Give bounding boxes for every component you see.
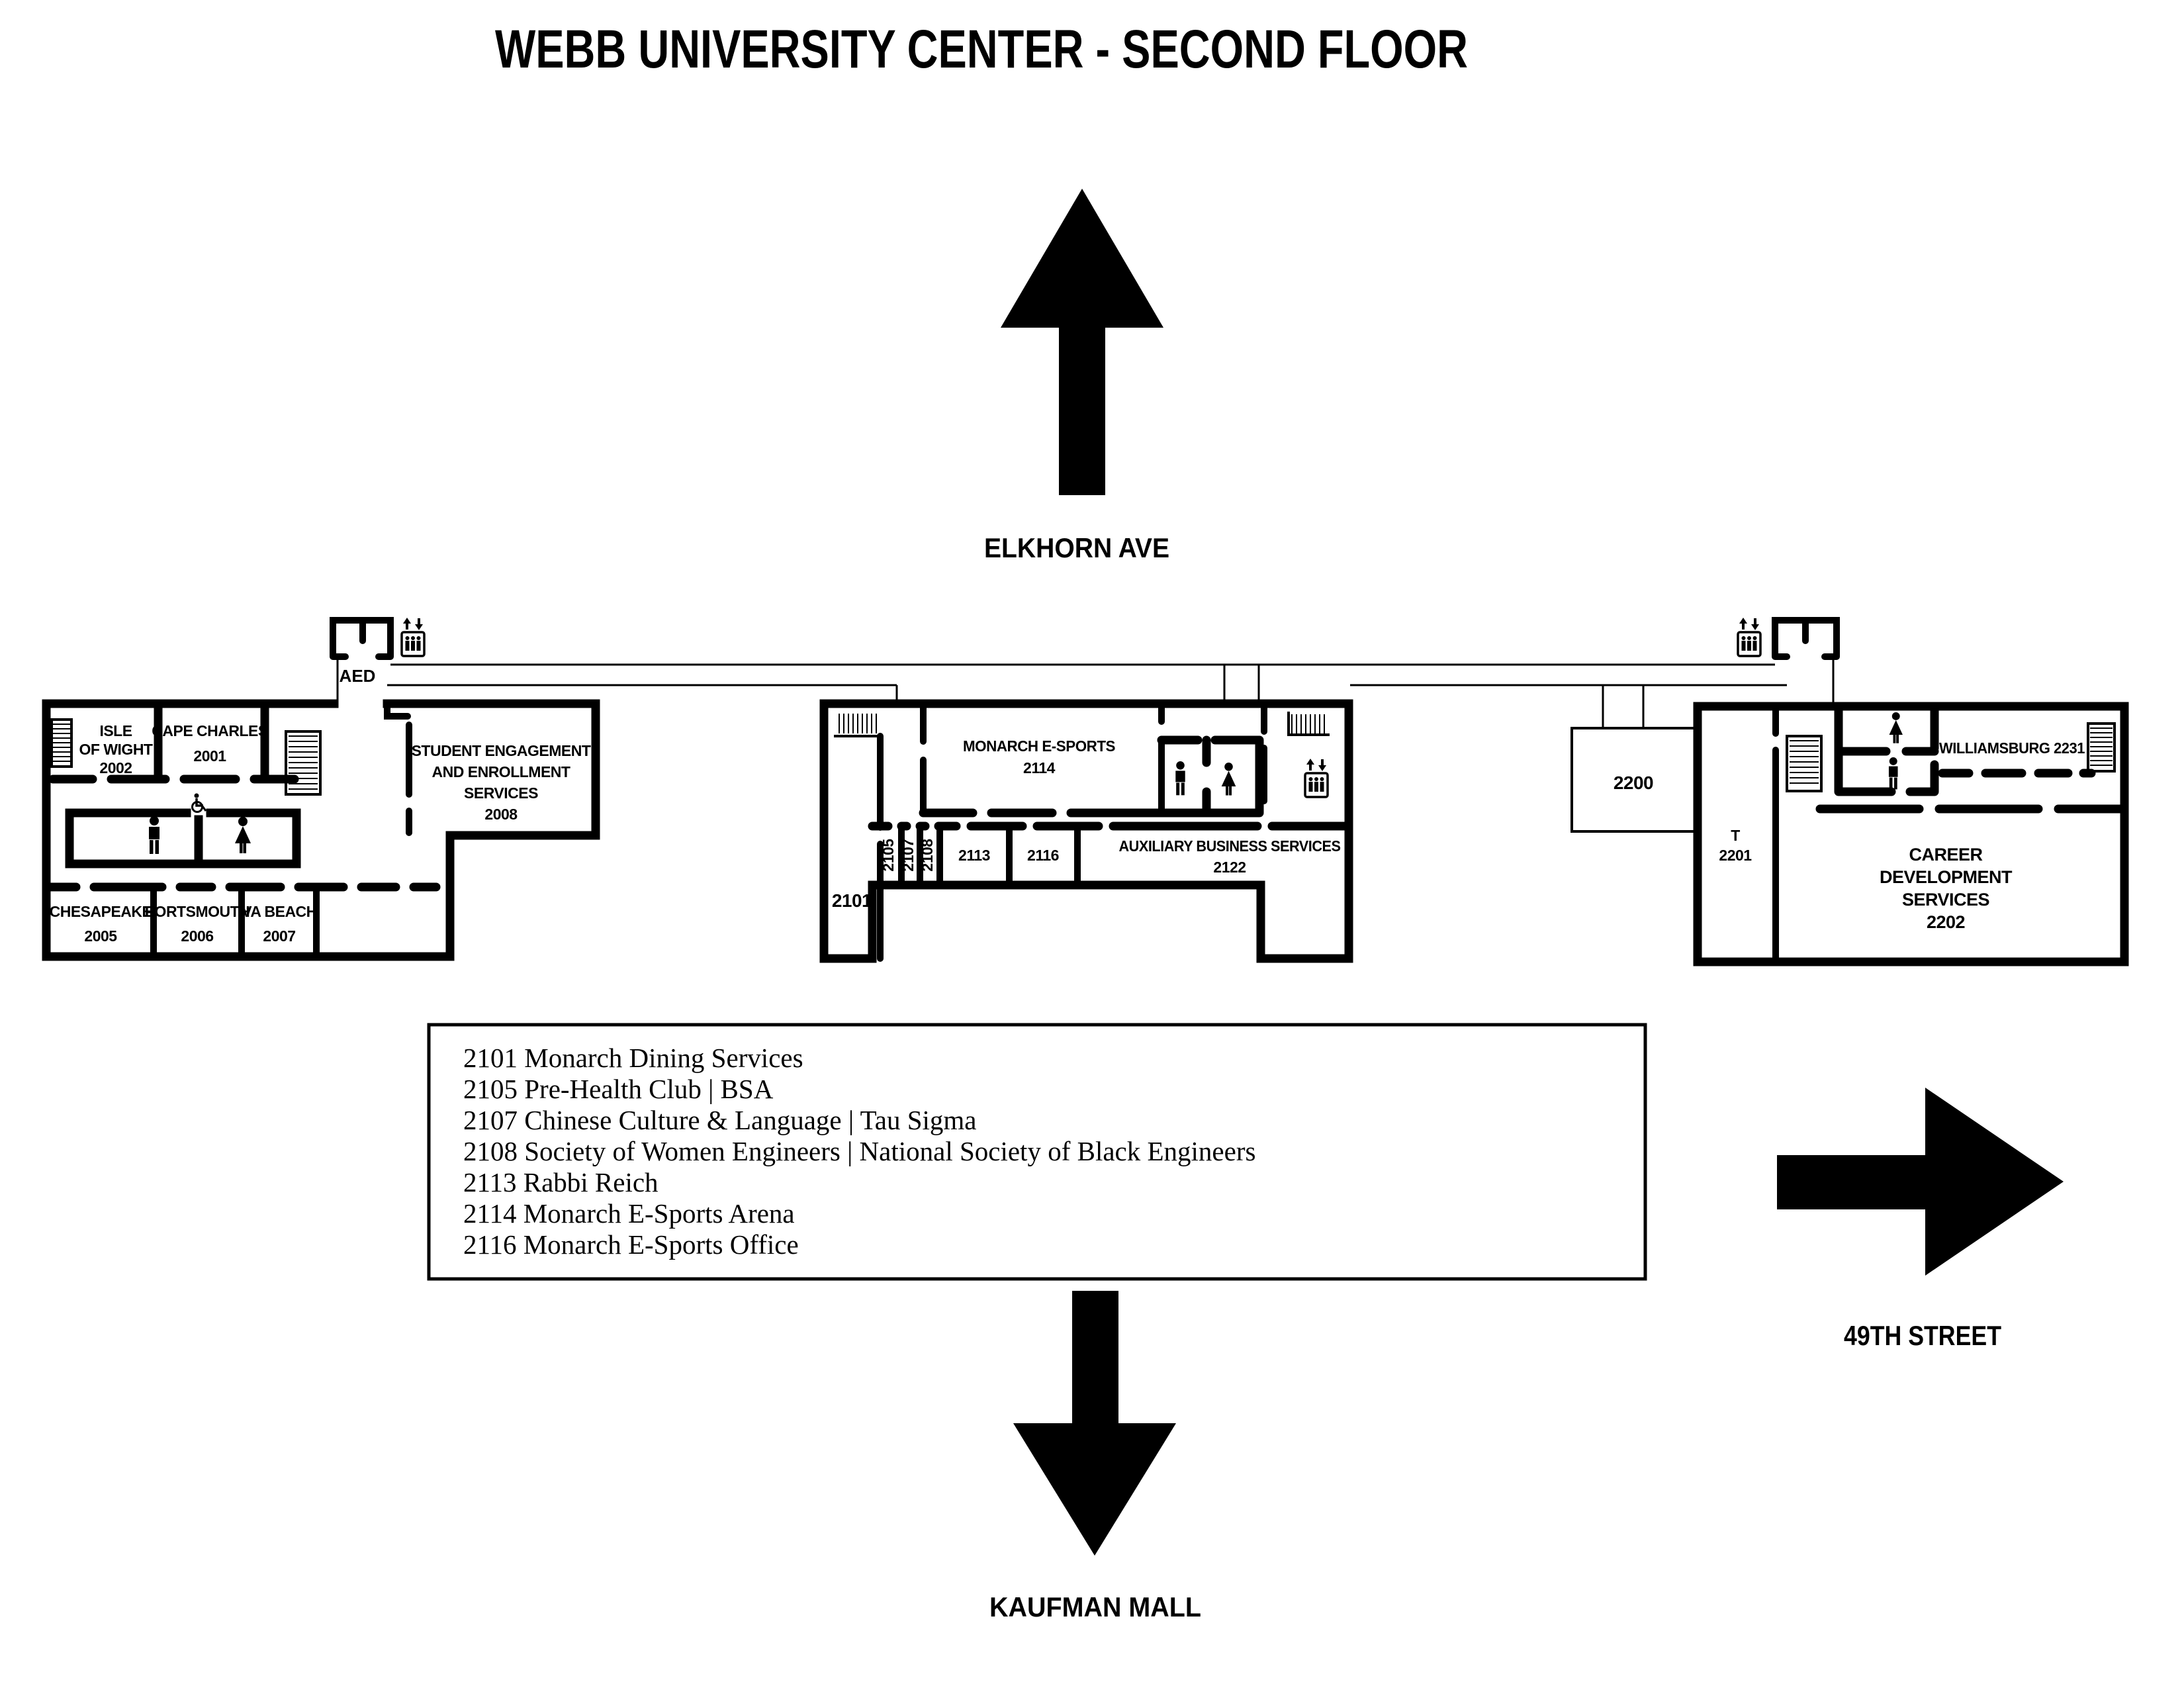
south-arrow-icon — [1013, 1291, 1176, 1556]
room-number-2116: 2116 — [1027, 847, 1059, 864]
legend-entry-2105: 2105 Pre-Health Club | BSA — [463, 1074, 774, 1104]
stairs-east-right-icon — [2088, 724, 2115, 771]
womens-restroom-icon — [235, 817, 251, 853]
room-label-isle-of-wight-2: OF WIGHT — [79, 741, 153, 758]
room-label-cape-charles: CAPE CHARLES — [152, 722, 268, 739]
room-number-2101: 2101 — [832, 890, 872, 911]
street-label-east: 49TH STREET — [1844, 1320, 2001, 1351]
room-number-2108: 2108 — [919, 839, 936, 872]
room-label-portsmouth: PORTSMOUTH — [145, 903, 250, 920]
room-label-isle-of-wight: ISLE — [99, 722, 132, 739]
room-number-2002: 2002 — [99, 759, 132, 776]
floor-plan-map: WEBB UNIVERSITY CENTER - SECOND FLOOR EL… — [0, 0, 2184, 1688]
room-number-2122: 2122 — [1213, 859, 1246, 876]
room-label-va-beach: VA BEACH — [242, 903, 317, 920]
room-number-2113: 2113 — [958, 847, 990, 864]
west-elevator-lobby — [333, 620, 390, 657]
stairs-central-left-icon — [835, 714, 880, 736]
legend-entry-2108: 2108 Society of Women Engineers | Nation… — [463, 1136, 1255, 1166]
mens-restroom-icon — [1889, 757, 1898, 789]
room-label-development: DEVELOPMENT — [1880, 867, 2013, 887]
mens-restroom-icon — [1175, 761, 1185, 795]
street-label-south: KAUFMAN MALL — [989, 1591, 1201, 1622]
room-label-ses-2: AND ENROLLMENT — [432, 763, 570, 780]
mens-restroom-icon — [149, 816, 159, 854]
room-label-ses-3: SERVICES — [464, 784, 538, 802]
room-number-2201: 2201 — [1719, 847, 1752, 864]
room-number-2107: 2107 — [899, 839, 917, 871]
east-wing: 2200 T 2201 WILLIAMSBURG 2231 CAREER DEV… — [1572, 706, 2124, 962]
west-elevator-icon — [402, 618, 424, 656]
accessible-icon — [193, 794, 206, 812]
room-number-2006: 2006 — [181, 927, 213, 945]
room-label-williamsburg-2231: WILLIAMSBURG 2231 — [1939, 739, 2085, 757]
floor-plan-page: WEBB UNIVERSITY CENTER - SECOND FLOOR EL… — [0, 0, 2184, 1688]
aed-label: AED — [340, 666, 376, 686]
womens-restroom-icon — [1889, 712, 1903, 743]
east-arrow-icon — [1777, 1088, 2064, 1276]
legend-entry-2107: 2107 Chinese Culture & Language | Tau Si… — [463, 1105, 976, 1135]
room-number-2008: 2008 — [484, 806, 518, 823]
stairs-central-right-icon — [1289, 713, 1328, 735]
north-arrow-icon — [1001, 189, 1163, 495]
central-wing: 2101 MONARCH E-SPORTS 2114 2105 2107 210… — [824, 704, 1349, 959]
stairs-west-left-icon — [52, 720, 71, 767]
street-label-north: ELKHORN AVE — [984, 532, 1169, 563]
east-elevator-icon — [1738, 618, 1760, 656]
room-label-ses-1: STUDENT ENGAGEMENT — [412, 742, 591, 759]
corridor-lines — [338, 657, 1833, 728]
room-number-2202: 2202 — [1927, 912, 1965, 932]
room-label-t: T — [1731, 827, 1740, 844]
west-wing: ISLE OF WIGHT 2002 CAPE CHARLES 2001 CHE… — [46, 704, 596, 957]
legend-entry-2114: 2114 Monarch E-Sports Arena — [463, 1198, 795, 1229]
legend: 2101 Monarch Dining Services 2105 Pre-He… — [429, 1025, 1645, 1279]
room-number-2200: 2200 — [1614, 773, 1653, 793]
room-number-2001: 2001 — [193, 747, 226, 765]
room-number-2105: 2105 — [880, 839, 897, 872]
legend-entry-2116: 2116 Monarch E-Sports Office — [463, 1229, 799, 1260]
room-number-2007: 2007 — [263, 927, 295, 945]
stairs-east-left-icon — [1787, 736, 1821, 791]
room-label-auxiliary-business: AUXILIARY BUSINESS SERVICES — [1119, 837, 1341, 855]
room-label-monarch-esports: MONARCH E-SPORTS — [963, 737, 1115, 755]
room-label-chesapeake: CHESAPEAKE — [50, 903, 152, 920]
room-label-services: SERVICES — [1902, 890, 1989, 910]
central-elevator-icon — [1305, 759, 1328, 797]
legend-entry-2113: 2113 Rabbi Reich — [463, 1167, 659, 1197]
legend-entry-2101: 2101 Monarch Dining Services — [463, 1043, 803, 1073]
room-number-2114: 2114 — [1023, 759, 1056, 776]
stairs-west-mid-icon — [286, 731, 320, 794]
womens-restroom-icon — [1222, 763, 1236, 796]
page-title: WEBB UNIVERSITY CENTER - SECOND FLOOR — [495, 19, 1468, 79]
room-number-2005: 2005 — [84, 927, 117, 945]
room-label-career: CAREER — [1909, 845, 1982, 865]
east-elevator-lobby — [1775, 620, 1837, 657]
